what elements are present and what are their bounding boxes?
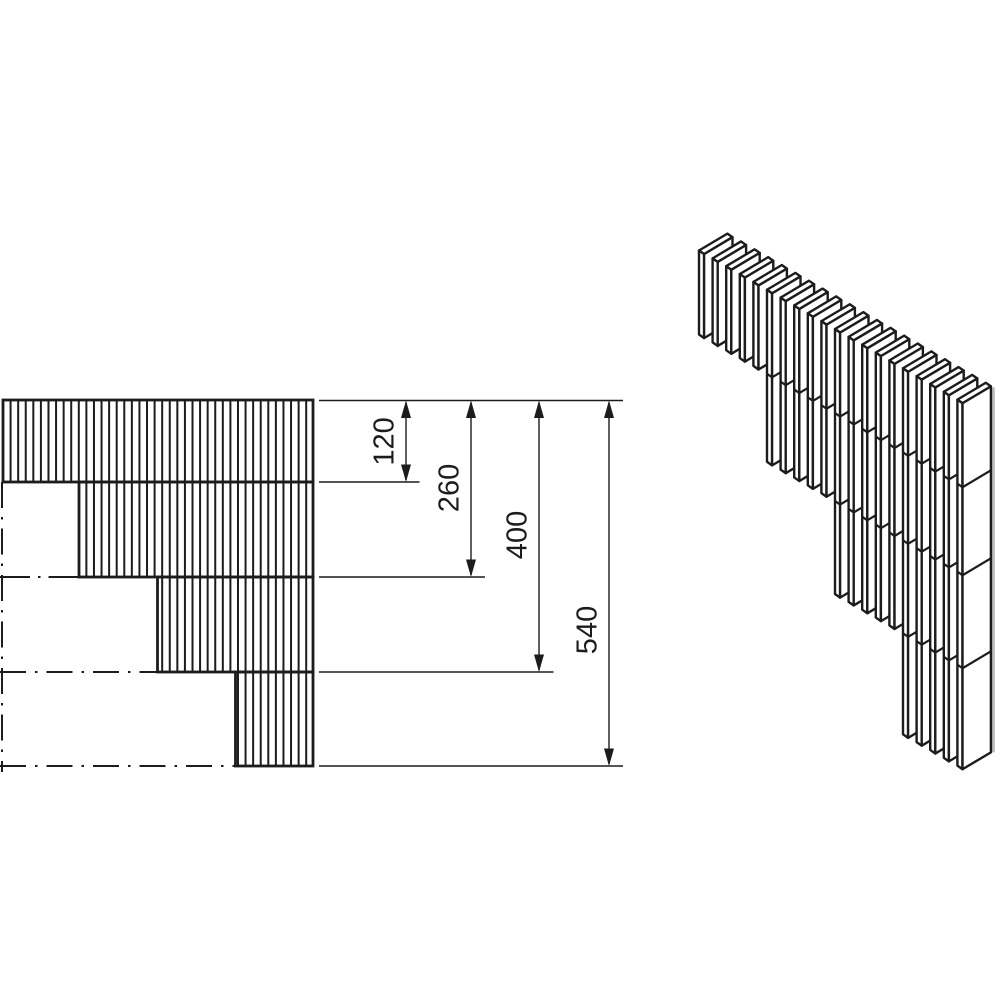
svg-text:400: 400 [502, 511, 534, 559]
svg-text:120: 120 [369, 417, 401, 465]
svg-text:540: 540 [572, 606, 604, 654]
svg-text:260: 260 [434, 464, 466, 512]
